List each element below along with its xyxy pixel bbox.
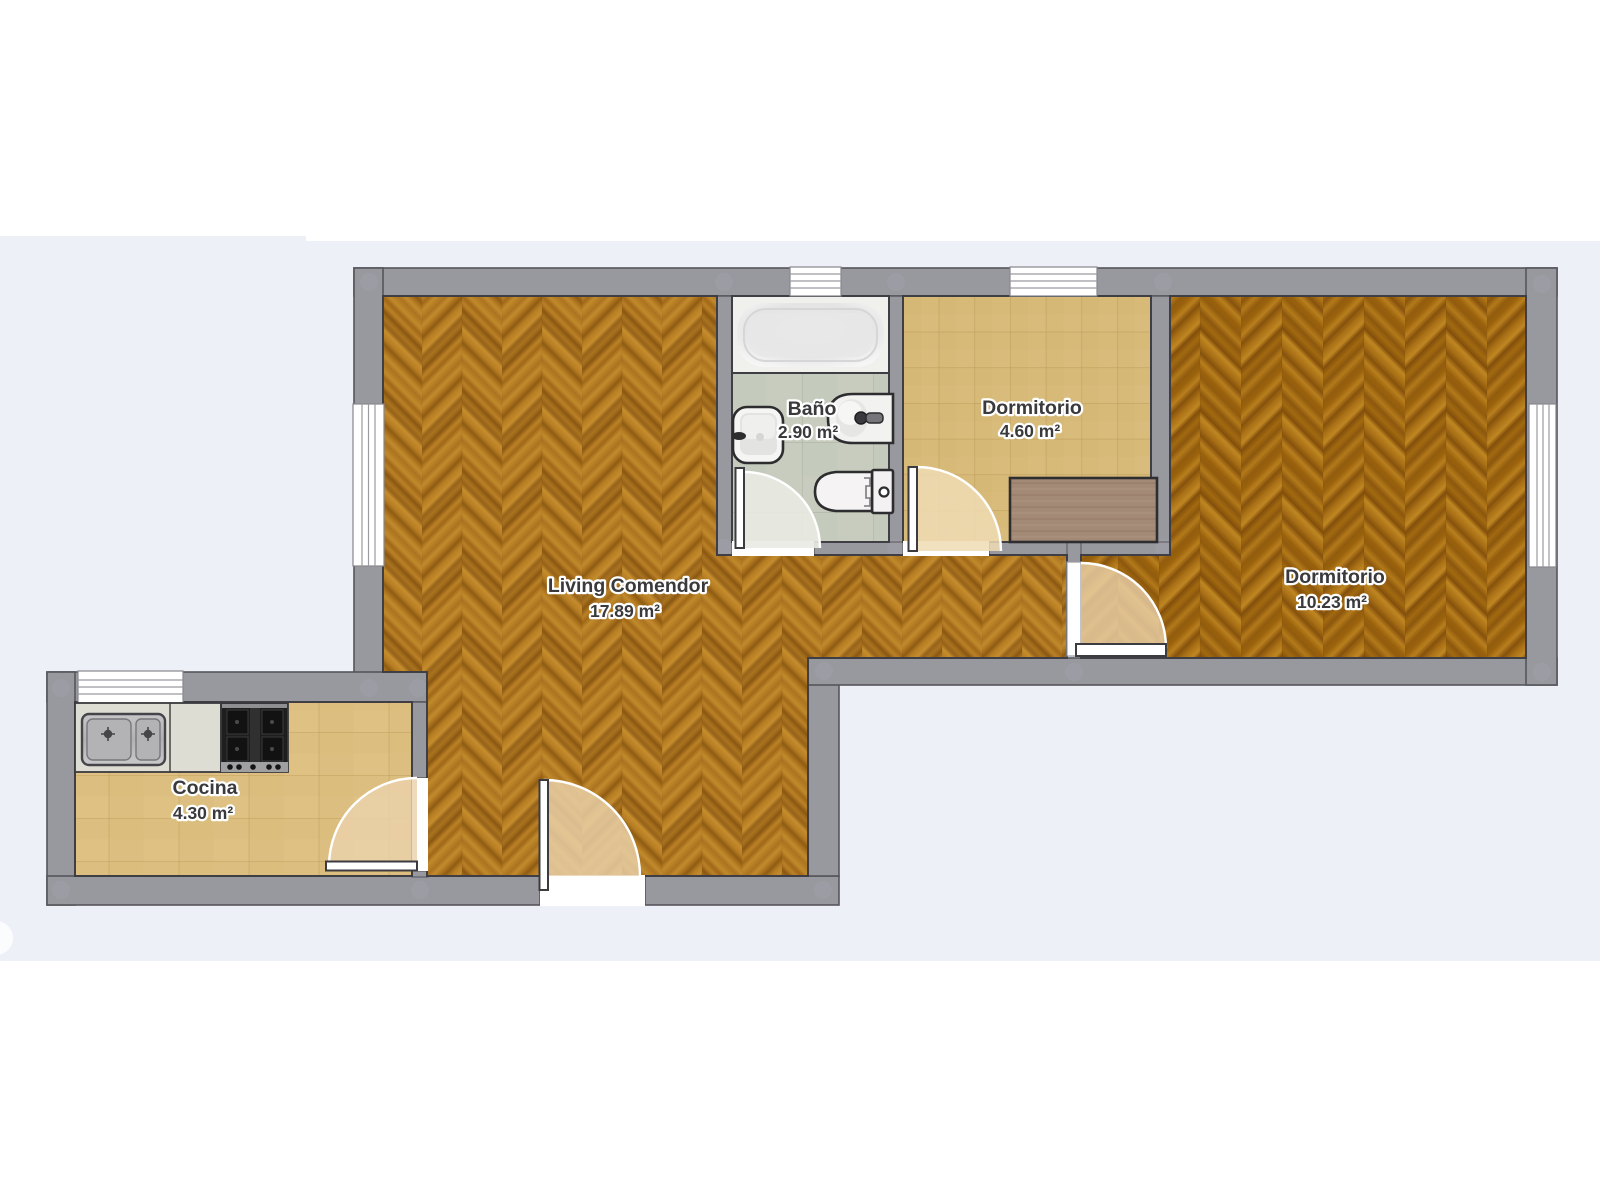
svg-text:2.90 m²: 2.90 m²	[778, 422, 838, 442]
svg-text:Baño: Baño	[788, 398, 837, 420]
svg-text:10.23 m²: 10.23 m²	[1297, 592, 1367, 612]
svg-text:Dormitorio: Dormitorio	[982, 397, 1082, 419]
svg-text:Dormitorio: Dormitorio	[1285, 566, 1385, 588]
svg-text:Cocina: Cocina	[172, 777, 237, 799]
svg-text:4.30 m²: 4.30 m²	[173, 803, 233, 823]
svg-text:17.89 m²: 17.89 m²	[590, 601, 660, 621]
svg-text:Living Comendor: Living Comendor	[548, 575, 709, 597]
svg-text:4.60 m²: 4.60 m²	[1000, 421, 1060, 441]
